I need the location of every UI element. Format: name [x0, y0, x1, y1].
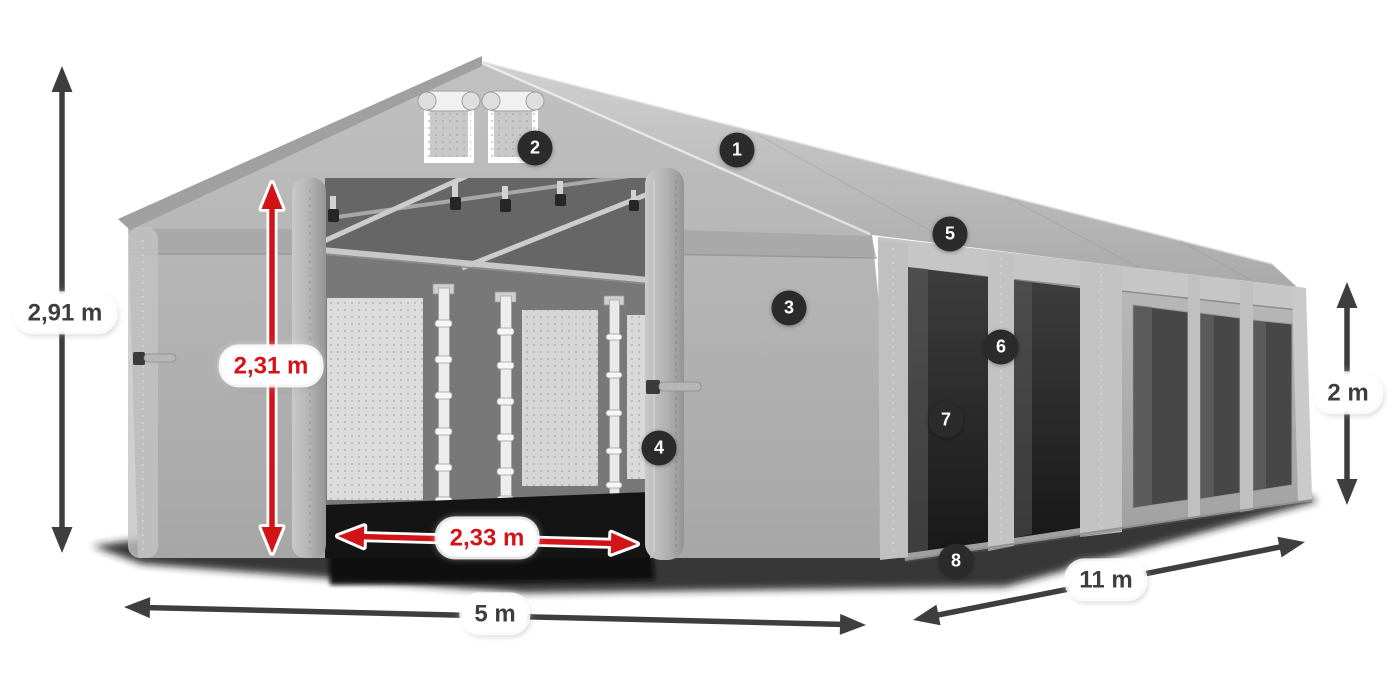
callout-7[interactable]: 7 [929, 403, 964, 438]
tent-dimensions-diagram: 2,91 m2,31 m2,33 m5 m11 m2 m 12345678 [0, 0, 1400, 700]
callout-2[interactable]: 2 [518, 131, 553, 166]
dimension-arrow-entrance-height [262, 183, 283, 553]
dimension-arrow-width [124, 597, 866, 635]
dimension-arrow-length [913, 537, 1305, 625]
callout-4[interactable]: 4 [642, 431, 677, 466]
callout-6[interactable]: 6 [984, 330, 1019, 365]
dimension-arrows [0, 0, 1400, 700]
callout-8[interactable]: 8 [939, 544, 974, 579]
callout-3[interactable]: 3 [772, 291, 807, 326]
dimension-arrow-entrance-width [338, 526, 637, 554]
callout-5[interactable]: 5 [933, 217, 968, 252]
dimension-arrow-side-height [1337, 282, 1358, 505]
dimension-arrow-total-height [52, 66, 73, 553]
callout-1[interactable]: 1 [720, 133, 755, 168]
